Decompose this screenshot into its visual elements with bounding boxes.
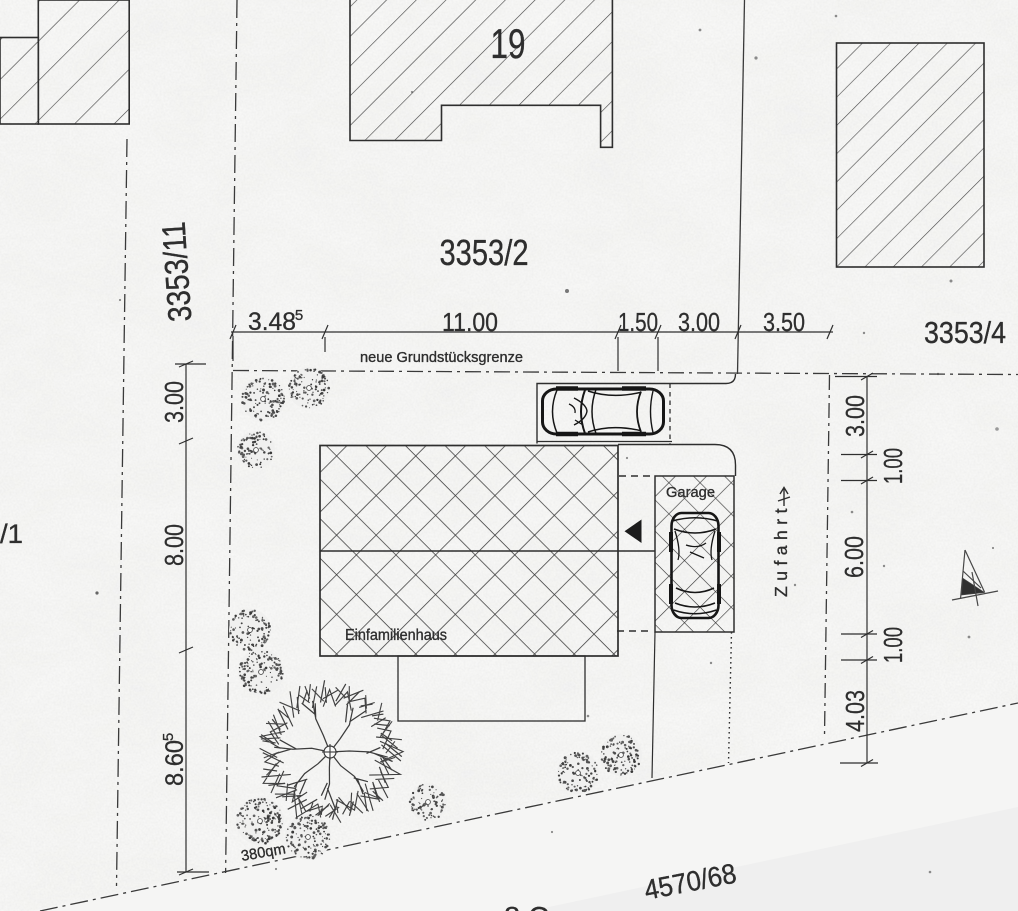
svg-text:Zufahrt: Zufahrt <box>771 503 791 597</box>
svg-text:3.50: 3.50 <box>763 307 805 337</box>
svg-text:3353/2: 3353/2 <box>440 232 529 273</box>
svg-text:1.00: 1.00 <box>878 627 908 663</box>
svg-text:neue Grundstücksgrenze: neue Grundstücksgrenze <box>360 349 523 366</box>
svg-text:5: 5 <box>160 733 177 741</box>
svg-text:3.00: 3.00 <box>678 307 720 337</box>
svg-text:1.50: 1.50 <box>618 307 658 337</box>
svg-text:3353/4: 3353/4 <box>924 315 1006 350</box>
svg-text:6.00: 6.00 <box>839 536 869 578</box>
svg-text:5: 5 <box>295 307 303 324</box>
svg-text:19: 19 <box>491 20 526 67</box>
svg-text:8.60: 8.60 <box>161 740 189 786</box>
svg-text:4.03: 4.03 <box>840 690 870 732</box>
svg-text:Einfamilienhaus: Einfamilienhaus <box>345 627 447 644</box>
svg-text:3.00: 3.00 <box>159 381 189 423</box>
svg-text:3.48: 3.48 <box>248 308 296 336</box>
svg-text:1.00: 1.00 <box>878 448 908 484</box>
svg-text:8.00: 8.00 <box>159 524 189 566</box>
svg-text:3353/11: 3353/11 <box>155 221 199 323</box>
svg-text:11.00: 11.00 <box>442 307 498 337</box>
svg-text:8 C: 8 C <box>504 902 549 911</box>
svg-text:3.00: 3.00 <box>840 395 870 437</box>
svg-text:Garage: Garage <box>666 484 715 501</box>
svg-text:/1: /1 <box>0 519 23 549</box>
